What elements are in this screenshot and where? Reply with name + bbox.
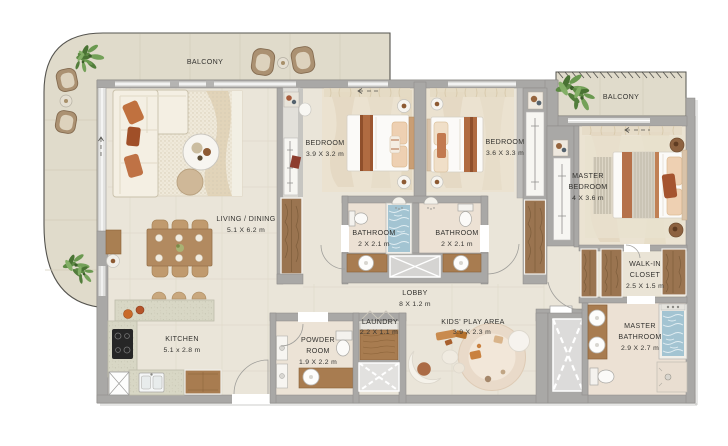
svg-text:CLOSET: CLOSET bbox=[630, 271, 661, 279]
svg-text:3.9 X 2.3 m: 3.9 X 2.3 m bbox=[453, 329, 491, 336]
svg-text:LIVING / DINING: LIVING / DINING bbox=[216, 215, 275, 223]
svg-text:2 X 2.1 m: 2 X 2.1 m bbox=[358, 241, 390, 248]
svg-text:3.6 X 3.3 m: 3.6 X 3.3 m bbox=[486, 150, 524, 157]
svg-text:WALK-IN: WALK-IN bbox=[629, 260, 661, 268]
svg-text:MASTER: MASTER bbox=[624, 322, 656, 330]
svg-text:3.9 X 3.2 m: 3.9 X 3.2 m bbox=[306, 151, 344, 158]
svg-text:KIDS' PLAY AREA: KIDS' PLAY AREA bbox=[441, 318, 505, 326]
svg-text:BALCONY: BALCONY bbox=[603, 93, 639, 101]
svg-text:MASTER: MASTER bbox=[572, 172, 604, 180]
svg-text:POWDER: POWDER bbox=[301, 336, 335, 344]
svg-text:ROOM: ROOM bbox=[306, 347, 329, 355]
svg-text:BALCONY: BALCONY bbox=[187, 58, 223, 66]
svg-text:BATHROOM: BATHROOM bbox=[352, 229, 395, 237]
svg-text:2.9 X 2.7 m: 2.9 X 2.7 m bbox=[621, 345, 659, 352]
svg-text:BEDROOM: BEDROOM bbox=[485, 138, 524, 146]
svg-text:BEDROOM: BEDROOM bbox=[568, 183, 607, 191]
svg-text:2.5 X 1.5 m: 2.5 X 1.5 m bbox=[626, 283, 664, 290]
svg-text:1.9 X 2.2 m: 1.9 X 2.2 m bbox=[299, 359, 337, 366]
svg-text:KITCHEN: KITCHEN bbox=[165, 335, 199, 343]
svg-text:5.1 x 2.8 m: 5.1 x 2.8 m bbox=[164, 347, 201, 354]
svg-text:4 X 3.6 m: 4 X 3.6 m bbox=[572, 195, 604, 202]
svg-text:2.2 X 1.1 m: 2.2 X 1.1 m bbox=[360, 329, 398, 336]
svg-text:BATHROOM: BATHROOM bbox=[435, 229, 478, 237]
svg-text:2 X 2.1 m: 2 X 2.1 m bbox=[441, 241, 473, 248]
svg-text:LOBBY: LOBBY bbox=[402, 289, 427, 297]
svg-text:LAUNDRY: LAUNDRY bbox=[362, 318, 398, 326]
svg-text:BEDROOM: BEDROOM bbox=[305, 139, 344, 147]
svg-text:8 X 1.2 m: 8 X 1.2 m bbox=[399, 301, 431, 308]
svg-text:BATHROOM: BATHROOM bbox=[618, 333, 661, 341]
svg-text:5.1 X 6.2 m: 5.1 X 6.2 m bbox=[227, 227, 265, 234]
